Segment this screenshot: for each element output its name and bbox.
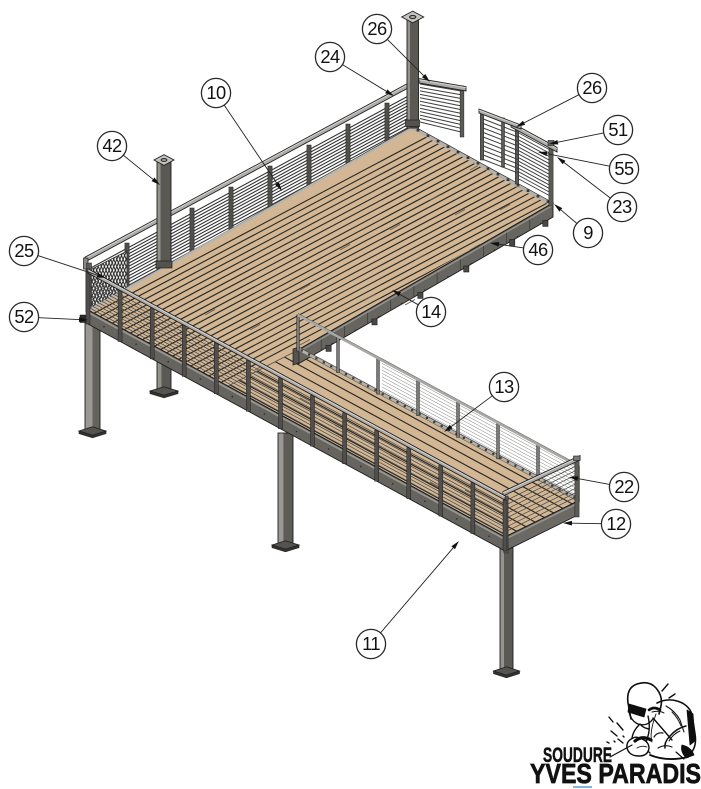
svg-text:52: 52 (14, 306, 34, 327)
svg-text:23: 23 (612, 196, 632, 217)
svg-text:46: 46 (528, 239, 548, 260)
svg-text:YVES PARADIS: YVES PARADIS (530, 758, 701, 789)
svg-text:24: 24 (320, 46, 340, 67)
svg-text:11: 11 (362, 633, 380, 654)
svg-text:9: 9 (583, 222, 593, 243)
svg-text:10: 10 (206, 82, 226, 103)
svg-text:26: 26 (367, 18, 387, 39)
svg-text:42: 42 (102, 135, 122, 156)
svg-text:12: 12 (606, 513, 626, 534)
svg-text:13: 13 (494, 376, 514, 397)
svg-text:22: 22 (614, 476, 634, 497)
svg-text:26: 26 (582, 77, 602, 98)
svg-text:55: 55 (614, 158, 634, 179)
svg-text:25: 25 (14, 240, 34, 261)
svg-text:51: 51 (608, 119, 628, 140)
svg-text:14: 14 (421, 301, 441, 322)
